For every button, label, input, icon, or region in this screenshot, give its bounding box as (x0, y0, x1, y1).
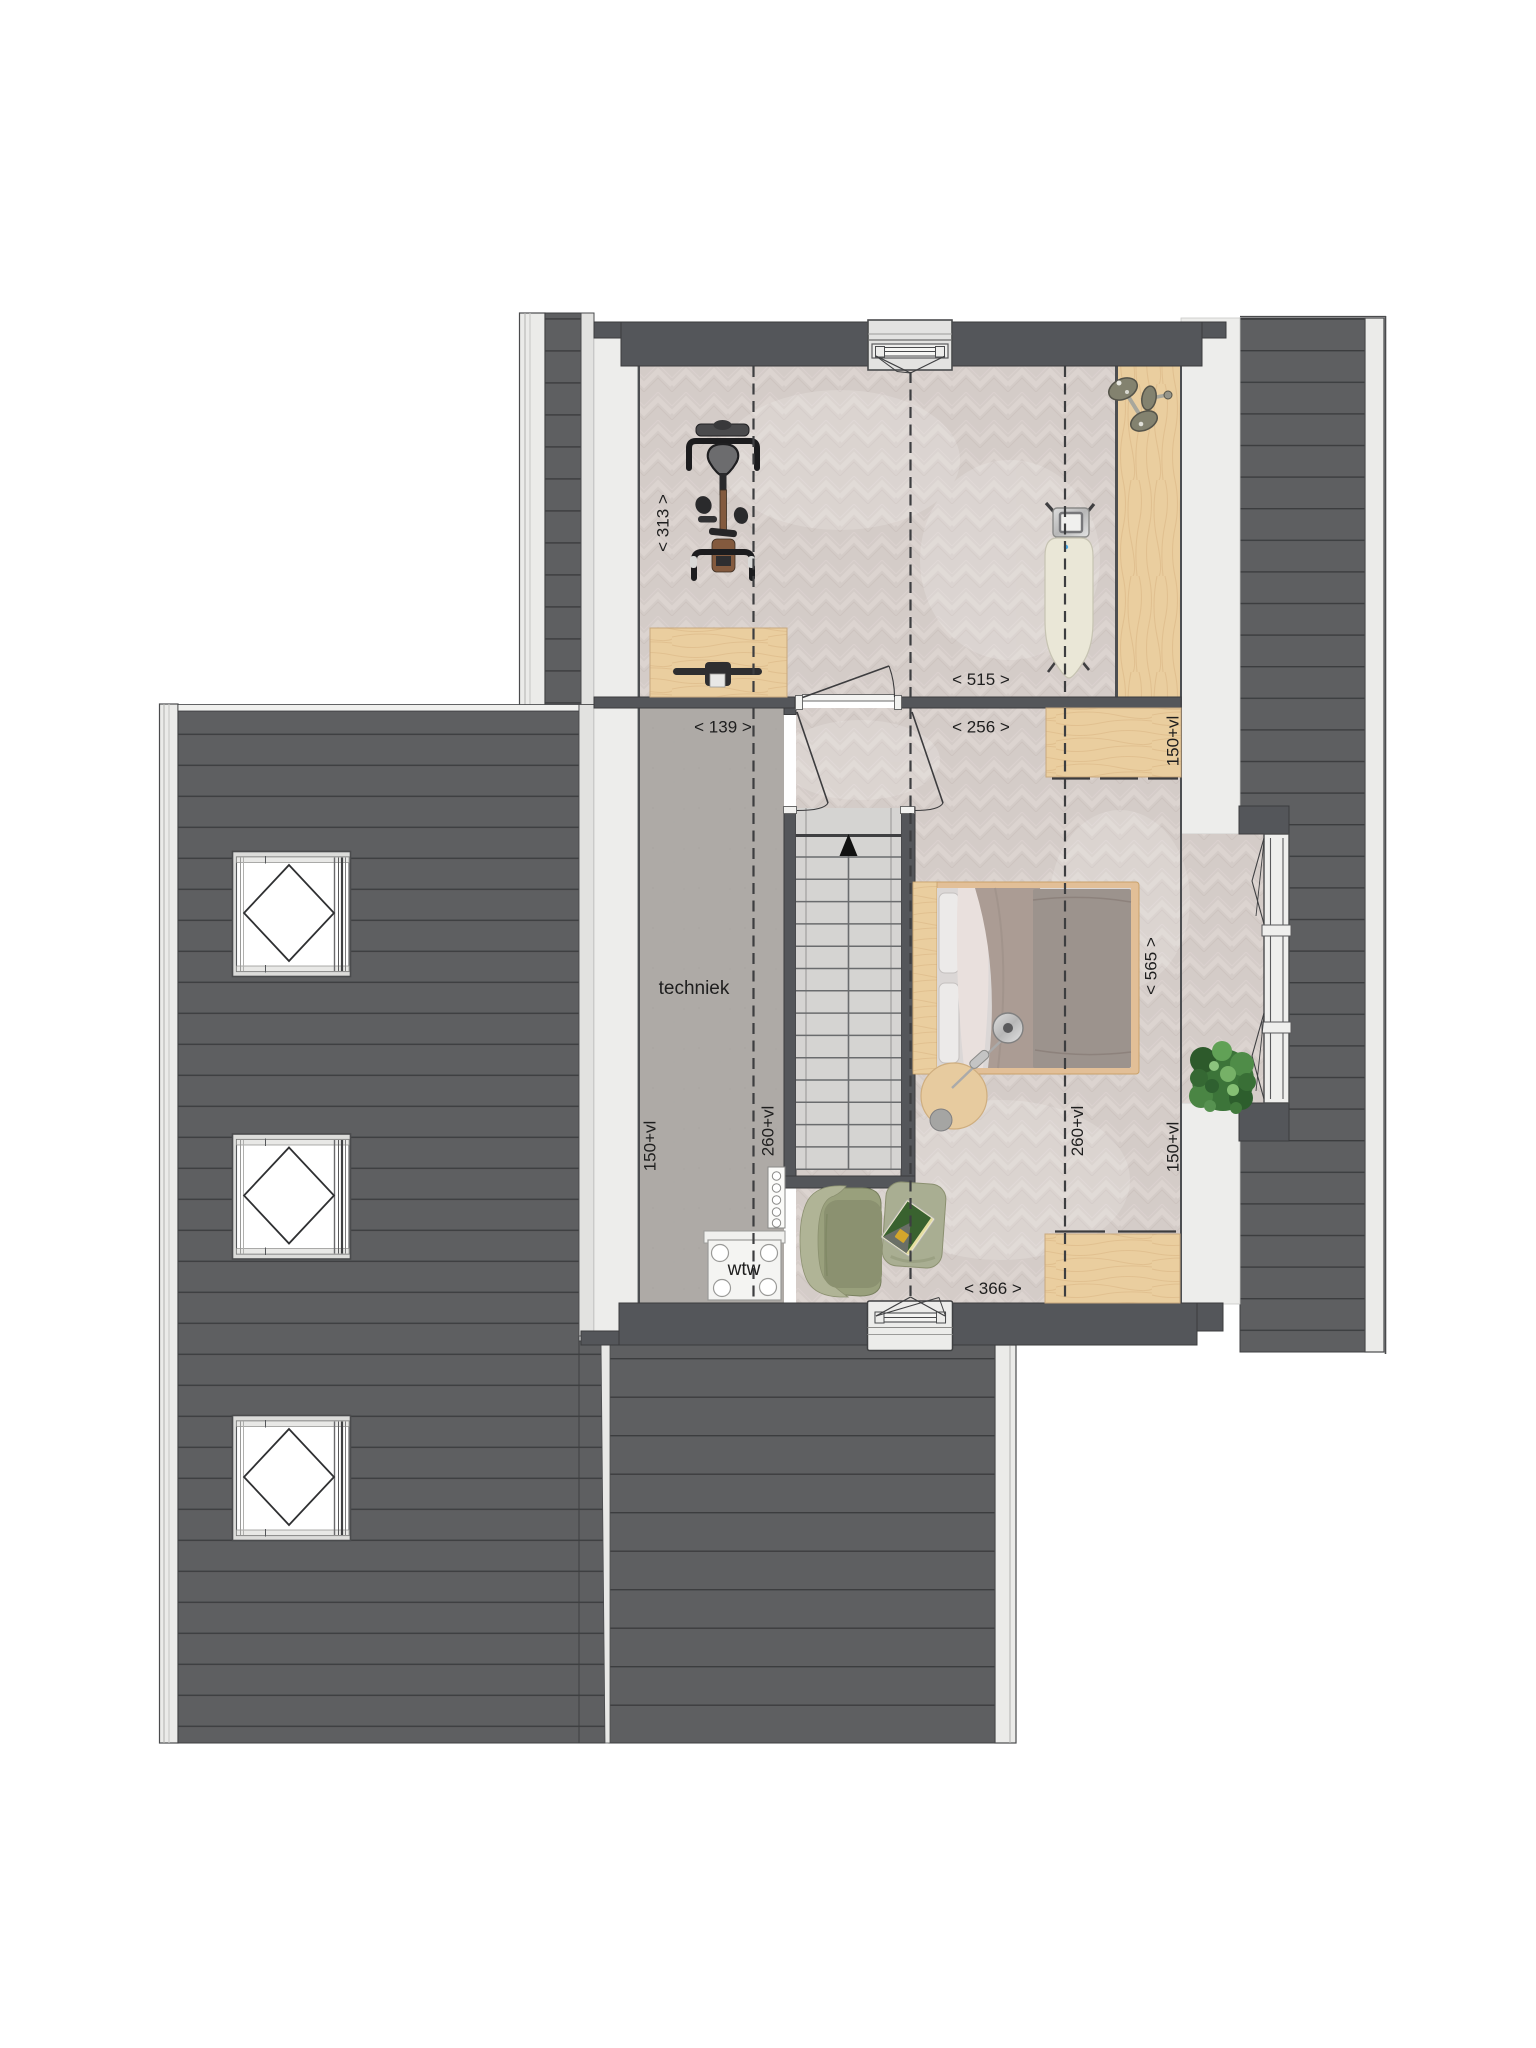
svg-text:260+vl: 260+vl (758, 1106, 777, 1157)
svg-text:< 139 >: < 139 > (694, 718, 752, 737)
svg-text:techniek: techniek (659, 978, 730, 999)
svg-text:< 565 >: < 565 > (1141, 937, 1160, 995)
svg-text:150+vl: 150+vl (640, 1121, 659, 1172)
svg-text:150+vl: 150+vl (1163, 1122, 1182, 1173)
svg-text:< 313 >: < 313 > (653, 494, 672, 552)
svg-text:wtw: wtw (727, 1259, 761, 1280)
svg-text:150+vl: 150+vl (1163, 716, 1182, 767)
svg-text:< 256 >: < 256 > (952, 718, 1010, 737)
svg-text:260+vl: 260+vl (1068, 1106, 1087, 1157)
svg-text:< 366 >: < 366 > (964, 1279, 1022, 1298)
svg-text:< 515 >: < 515 > (952, 670, 1010, 689)
